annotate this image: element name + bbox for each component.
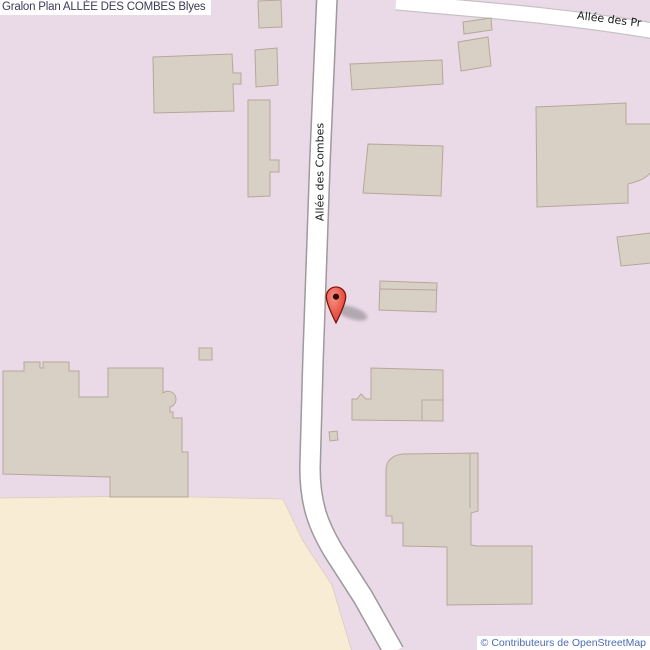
building [153, 54, 241, 113]
building [617, 233, 650, 266]
farmland-area [0, 496, 352, 650]
building [3, 362, 188, 497]
osm-attribution-link[interactable]: © Contributeurs de OpenStreetMap [477, 636, 650, 650]
building [386, 453, 532, 605]
building [458, 37, 491, 71]
building [463, 18, 492, 34]
map-tiles-layer [0, 0, 650, 650]
building [536, 103, 650, 207]
page-title: Gralon Plan ALLÉE DES COMBES Blyes [0, 0, 211, 15]
building [329, 431, 338, 441]
building [363, 144, 443, 196]
building [248, 100, 279, 197]
building [255, 48, 278, 87]
map-canvas[interactable]: Allée des Combes Allée des Pr Gralon Pla… [0, 0, 650, 650]
map-marker-icon[interactable] [326, 287, 345, 323]
building [350, 60, 443, 90]
building [199, 348, 212, 360]
building [258, 0, 282, 28]
building [379, 281, 437, 312]
road-label-allee-des-combes: Allée des Combes [314, 123, 327, 221]
building [352, 368, 443, 421]
road-allee-des-combes [310, 0, 394, 650]
